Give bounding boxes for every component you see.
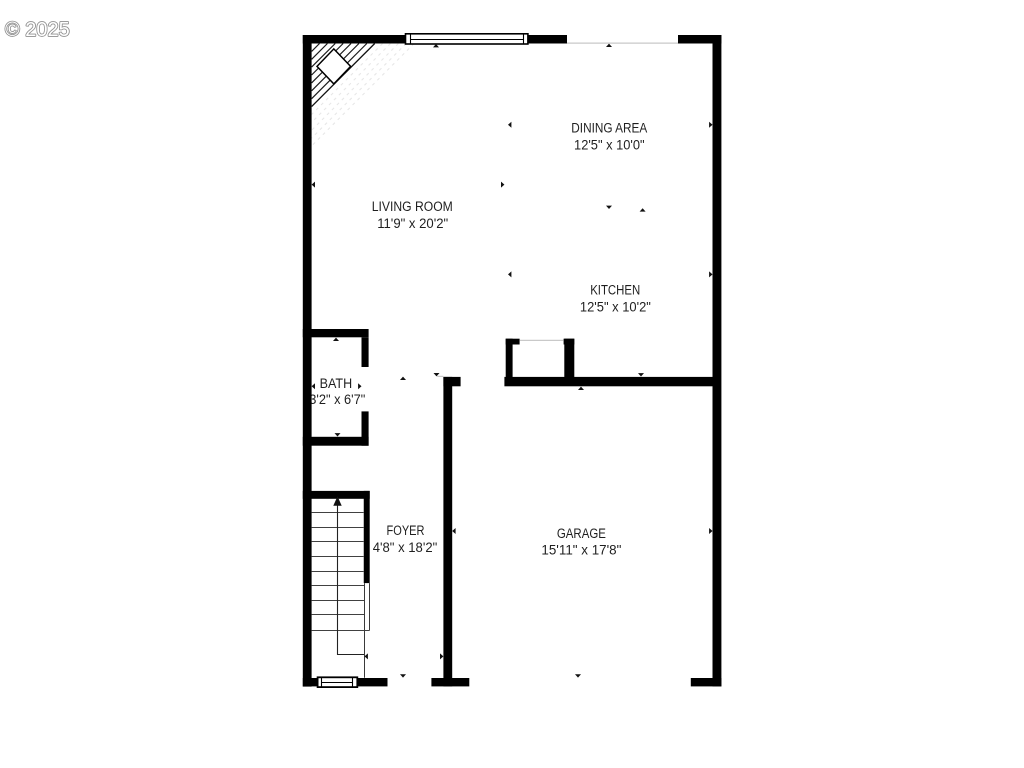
svg-text:3'2" x 6'7": 3'2" x 6'7" — [309, 392, 365, 407]
svg-text:4'8" x 18'2": 4'8" x 18'2" — [373, 540, 438, 555]
svg-text:15'11" x 17'8": 15'11" x 17'8" — [541, 542, 621, 557]
svg-text:12'5" x 10'2": 12'5" x 10'2" — [580, 299, 651, 314]
svg-text:DINING AREA: DINING AREA — [571, 121, 647, 136]
svg-text:BATH: BATH — [320, 376, 353, 391]
svg-text:© 2025: © 2025 — [5, 19, 70, 41]
svg-text:GARAGE: GARAGE — [557, 526, 606, 541]
svg-text:KITCHEN: KITCHEN — [590, 282, 640, 297]
svg-text:LIVING ROOM: LIVING ROOM — [372, 199, 453, 214]
svg-text:12'5" x 10'0": 12'5" x 10'0" — [574, 138, 645, 153]
svg-text:FOYER: FOYER — [387, 523, 425, 538]
svg-text:11'9" x 20'2": 11'9" x 20'2" — [377, 216, 448, 231]
